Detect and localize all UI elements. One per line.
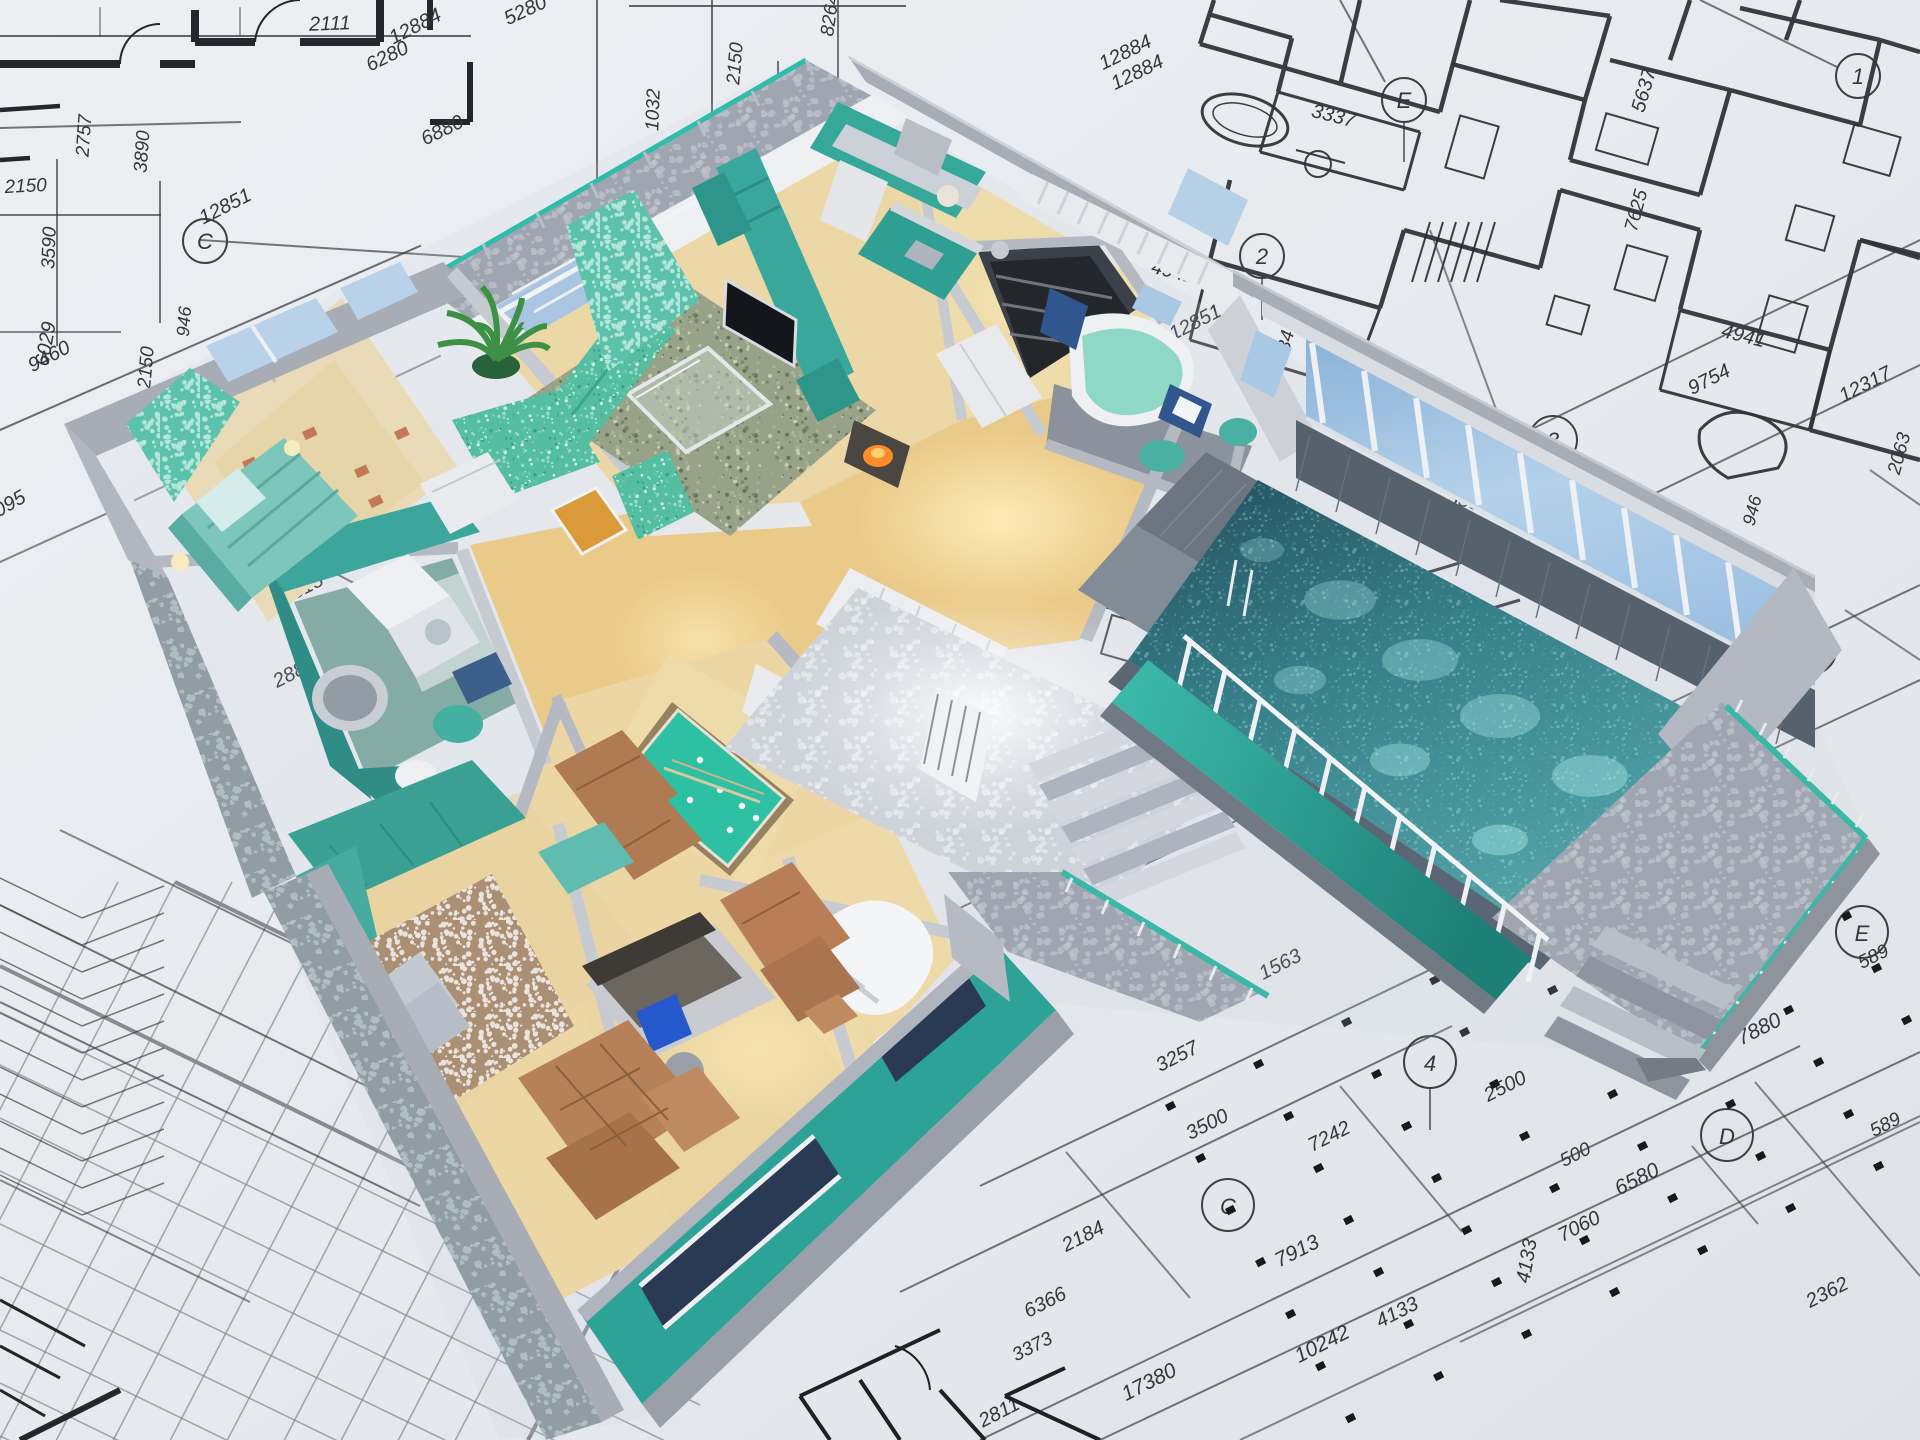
svg-text:E: E (1855, 921, 1870, 946)
svg-text:4: 4 (1424, 1051, 1436, 1076)
svg-text:1032: 1032 (642, 88, 664, 131)
svg-text:2: 2 (1255, 244, 1268, 269)
svg-text:2150: 2150 (723, 41, 748, 86)
svg-text:3590: 3590 (38, 226, 60, 269)
svg-text:2150: 2150 (3, 175, 48, 198)
svg-text:946: 946 (173, 305, 196, 338)
svg-text:2757: 2757 (72, 112, 96, 158)
svg-text:1: 1 (1852, 64, 1864, 89)
svg-text:D: D (1719, 1124, 1735, 1149)
svg-text:3890: 3890 (131, 129, 155, 173)
svg-text:C: C (197, 229, 213, 254)
svg-text:2111: 2111 (308, 12, 351, 35)
